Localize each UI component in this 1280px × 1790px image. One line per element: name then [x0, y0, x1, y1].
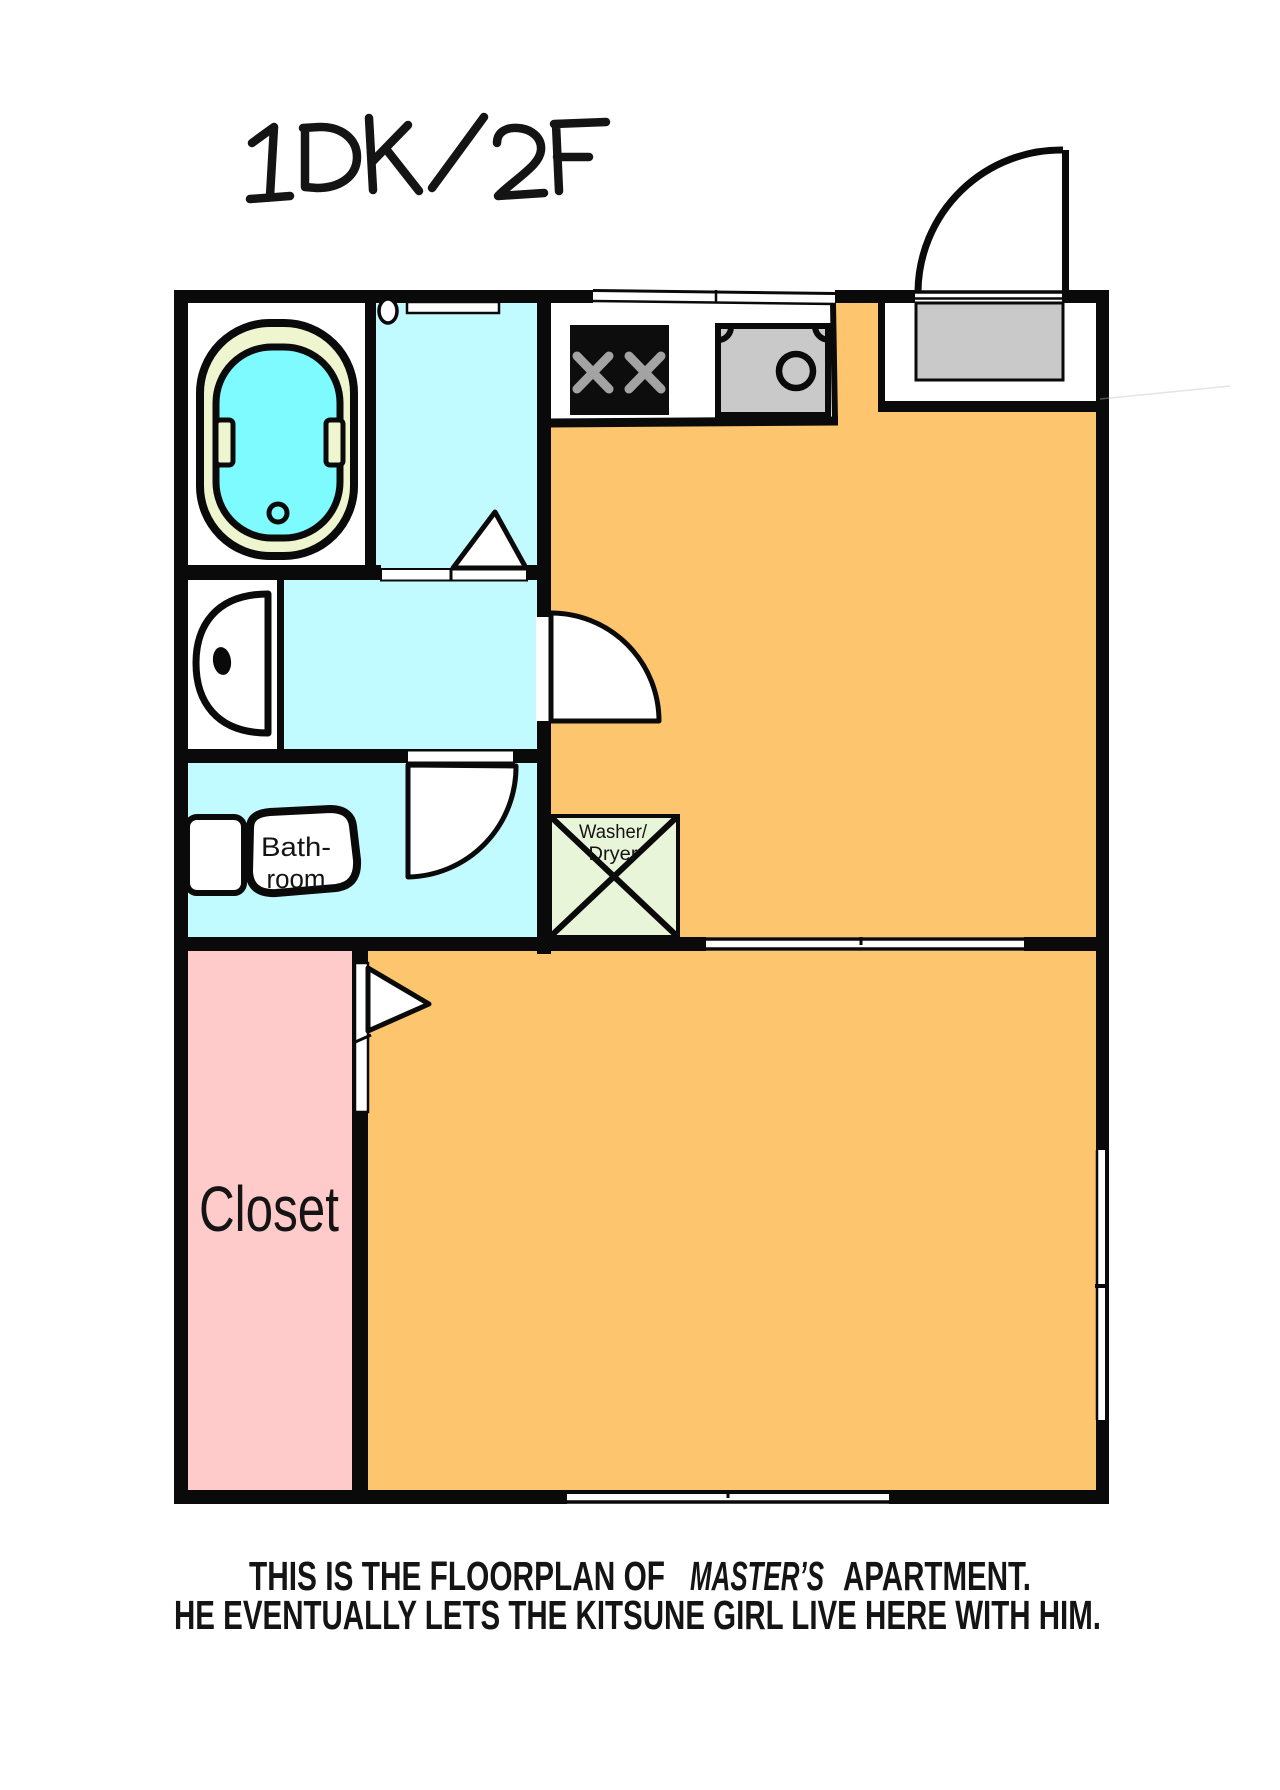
svg-text:Closet: Closet [199, 1173, 339, 1245]
svg-text:HE EVENTUALLY LETS THE KITSUNE: HE EVENTUALLY LETS THE KITSUNE GIRL LIVE… [174, 1592, 1101, 1638]
svg-text:room: room [267, 864, 326, 894]
svg-text:Washer/: Washer/ [579, 822, 648, 843]
svg-text:Bath-: Bath- [261, 832, 331, 862]
svg-text:Dryer: Dryer [589, 844, 639, 865]
